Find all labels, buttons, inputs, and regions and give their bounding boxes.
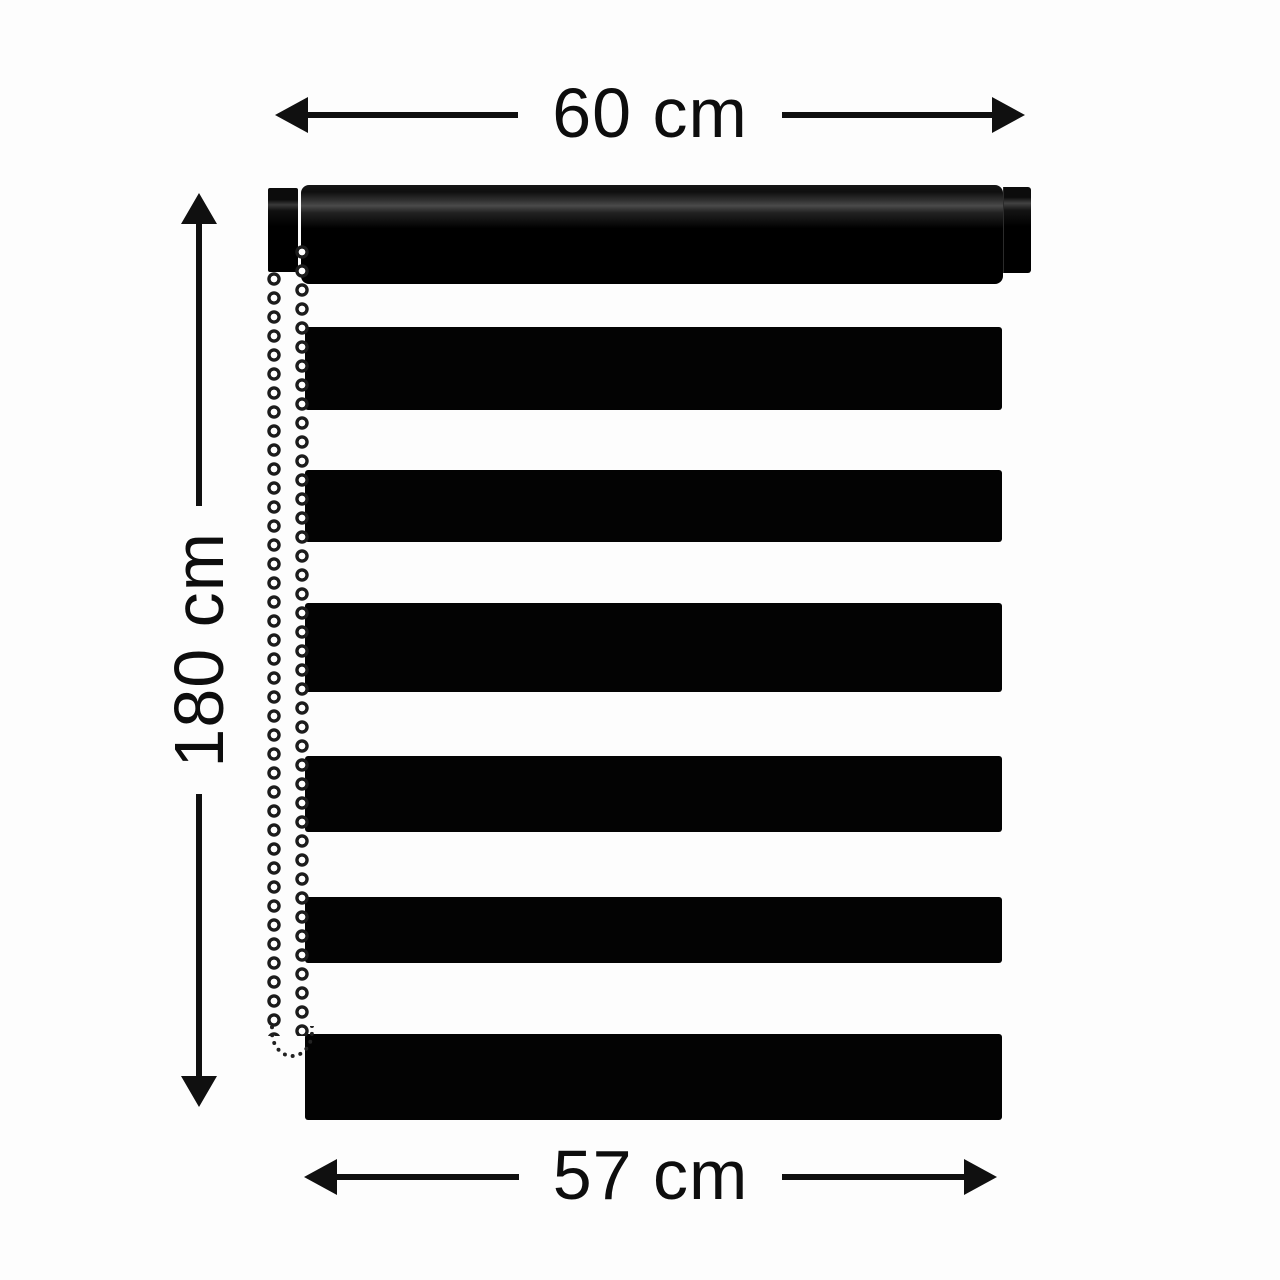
fabric-stripe (305, 603, 1002, 692)
top-width-dimension: 60 cm (275, 97, 1025, 133)
diagram-canvas: 60 cm 180 cm 57 cm (0, 0, 1280, 1280)
top-width-label: 60 cm (552, 78, 748, 152)
left-height-label: 180 cm (164, 532, 234, 768)
arrow-up-icon (181, 193, 217, 224)
dimension-line (196, 224, 202, 506)
left-height-dimension: 180 cm (181, 193, 217, 1107)
bottom-width-label: 57 cm (553, 1140, 749, 1214)
end-cap-right (1003, 187, 1031, 273)
bottom-width-dimension: 57 cm (304, 1159, 997, 1195)
dimension-line (337, 1174, 519, 1180)
dimension-line (782, 1174, 964, 1180)
fabric-stripe (305, 327, 1002, 410)
arrow-left-icon (275, 97, 308, 133)
fabric-stripe (305, 897, 1002, 963)
bead-chain-right-strand (294, 243, 310, 1036)
fabric-stripe (305, 470, 1002, 542)
fabric-bottom-bar (305, 1034, 1002, 1120)
bead-chain-left-strand (266, 270, 282, 1036)
arrow-right-icon (992, 97, 1025, 133)
fabric-stripe (305, 756, 1002, 832)
arrow-right-icon (964, 1159, 997, 1195)
dimension-line (308, 112, 518, 118)
roller-tube (301, 185, 1003, 284)
arrow-down-icon (181, 1076, 217, 1107)
arrow-left-icon (304, 1159, 337, 1195)
dimension-line (196, 794, 202, 1076)
dimension-line (782, 112, 992, 118)
